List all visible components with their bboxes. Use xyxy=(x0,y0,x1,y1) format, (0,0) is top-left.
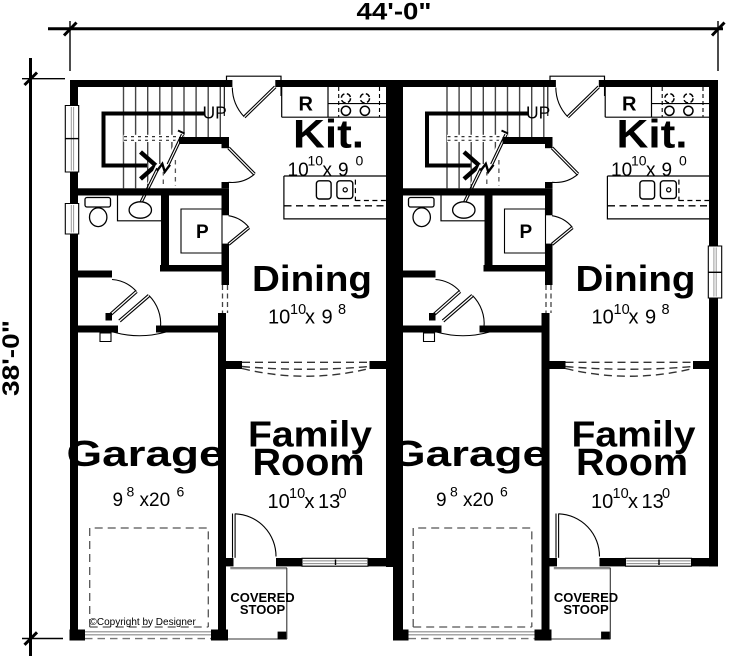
svg-text:13: 13 xyxy=(318,491,340,513)
svg-text:10: 10 xyxy=(290,302,306,318)
svg-text:x20: x20 xyxy=(463,490,494,511)
svg-text:6: 6 xyxy=(177,484,185,500)
svg-text:Garage: Garage xyxy=(390,433,548,474)
svg-text:x20: x20 xyxy=(140,490,171,511)
svg-text:Room: Room xyxy=(253,442,365,484)
svg-text:10: 10 xyxy=(308,153,324,169)
svg-text:8: 8 xyxy=(338,302,346,318)
svg-text:8: 8 xyxy=(450,484,458,500)
svg-text:UP: UP xyxy=(203,103,227,123)
svg-text:13: 13 xyxy=(642,491,664,513)
svg-text:38'-0": 38'-0" xyxy=(0,320,25,396)
svg-text:x: x xyxy=(305,307,315,329)
svg-text:x: x xyxy=(305,491,315,513)
svg-text:Dining: Dining xyxy=(576,258,696,299)
svg-text:10: 10 xyxy=(631,153,647,169)
svg-text:10: 10 xyxy=(591,491,613,513)
svg-text:Garage: Garage xyxy=(67,433,225,474)
svg-text:UP: UP xyxy=(526,103,550,123)
svg-text:10: 10 xyxy=(614,302,630,318)
svg-text:9: 9 xyxy=(113,490,124,511)
svg-text:9: 9 xyxy=(322,307,333,329)
svg-text:x: x xyxy=(629,307,639,329)
svg-text:10: 10 xyxy=(268,307,290,329)
svg-text:P: P xyxy=(520,222,533,243)
svg-text:9: 9 xyxy=(645,307,656,329)
svg-text:Kit.: Kit. xyxy=(293,113,364,157)
svg-text:©Copyright by Designer: ©Copyright by Designer xyxy=(90,617,197,628)
svg-text:9: 9 xyxy=(436,490,447,511)
svg-text:0: 0 xyxy=(662,486,670,502)
svg-text:10: 10 xyxy=(289,486,305,502)
svg-text:9: 9 xyxy=(338,160,349,181)
svg-text:6: 6 xyxy=(500,484,508,500)
svg-text:0: 0 xyxy=(679,153,687,169)
svg-text:0: 0 xyxy=(339,486,347,502)
svg-text:Kit.: Kit. xyxy=(617,113,688,157)
svg-text:STOOP: STOOP xyxy=(240,602,286,617)
svg-text:STOOP: STOOP xyxy=(563,602,609,617)
svg-text:P: P xyxy=(196,222,209,243)
svg-text:8: 8 xyxy=(127,484,135,500)
svg-text:8: 8 xyxy=(662,302,670,318)
svg-text:10: 10 xyxy=(288,160,309,181)
svg-text:x: x xyxy=(628,491,638,513)
svg-text:x: x xyxy=(323,160,333,181)
svg-text:Dining: Dining xyxy=(252,258,372,299)
svg-text:9: 9 xyxy=(662,160,673,181)
svg-text:Room: Room xyxy=(576,442,688,484)
svg-text:10: 10 xyxy=(611,160,632,181)
svg-text:x: x xyxy=(646,160,656,181)
svg-text:0: 0 xyxy=(356,153,364,169)
svg-text:44'-0": 44'-0" xyxy=(357,0,432,26)
svg-text:10: 10 xyxy=(592,307,614,329)
svg-text:10: 10 xyxy=(268,491,290,513)
svg-text:10: 10 xyxy=(613,486,629,502)
